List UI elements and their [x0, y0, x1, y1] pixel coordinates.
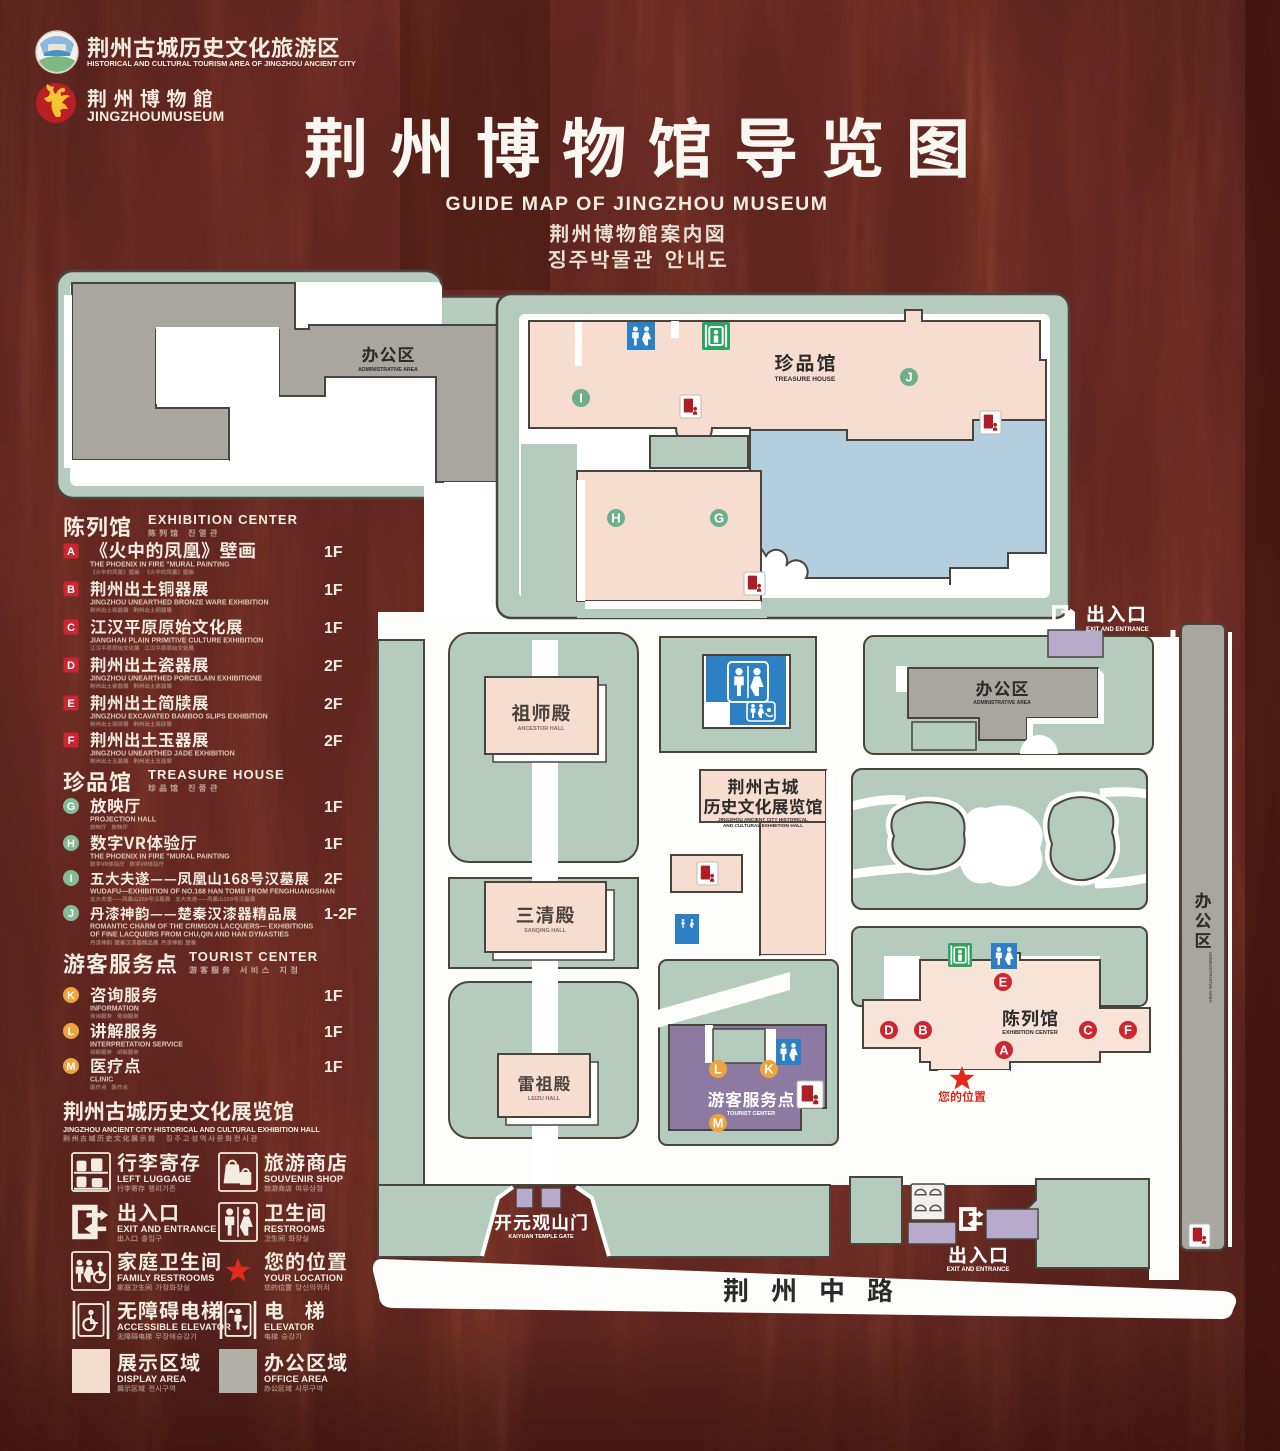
svg-text:G: G	[67, 801, 76, 813]
svg-text:KAIYUAN TEMPLE GATE: KAIYUAN TEMPLE GATE	[508, 1234, 574, 1240]
svg-text:E: E	[999, 975, 1008, 990]
svg-text:JIANGHAN PLAIN PRIMITIVE CULTU: JIANGHAN PLAIN PRIMITIVE CULTURE EXHIBIT…	[90, 638, 263, 645]
svg-text:J: J	[905, 370, 912, 385]
svg-text:LEIZU HALL: LEIZU HALL	[528, 1096, 561, 1102]
svg-text:K: K	[67, 990, 75, 1002]
svg-text:INFORMATION: INFORMATION	[90, 1006, 139, 1013]
svg-text:THE PHOENIX IN FIRE "MURAL PAI: THE PHOENIX IN FIRE "MURAL PAINTING	[90, 562, 230, 569]
svg-text:1F: 1F	[324, 544, 343, 561]
svg-text:OFFICE AREA: OFFICE AREA	[264, 1374, 328, 1384]
svg-text:JINGZHOU ANCIENT CITY HISTORIC: JINGZHOU ANCIENT CITY HISTORICAL AND CUL…	[63, 1125, 320, 1134]
svg-text:H: H	[611, 511, 620, 526]
svg-text:G: G	[714, 511, 724, 526]
svg-text:ELEVATOR: ELEVATOR	[264, 1322, 314, 1332]
svg-text:2F: 2F	[324, 696, 343, 713]
svg-text:PROJECTION HALL: PROJECTION HALL	[90, 817, 157, 824]
svg-text:EXHIBITION CENTER: EXHIBITION CENTER	[148, 512, 298, 527]
svg-text:YOUR LOCATION: YOUR LOCATION	[264, 1273, 343, 1283]
svg-text:1F: 1F	[324, 1024, 343, 1041]
svg-text:D: D	[67, 660, 75, 672]
svg-text:LEFT LUGGAGE: LEFT LUGGAGE	[117, 1174, 191, 1184]
svg-text:JINGZHOU UNEARTHED BRONZE WARE: JINGZHOU UNEARTHED BRONZE WARE EXHIBITIO…	[90, 600, 269, 607]
svg-text:CLINIC: CLINIC	[90, 1077, 113, 1084]
svg-text:EXIT AND ENTRANCE: EXIT AND ENTRANCE	[1086, 627, 1149, 633]
svg-text:JINGZHOUMUSEUM: JINGZHOUMUSEUM	[87, 108, 224, 124]
svg-text:DISPLAY AREA: DISPLAY AREA	[117, 1374, 187, 1384]
svg-text:I: I	[69, 873, 72, 885]
svg-text:B: B	[918, 1023, 927, 1038]
svg-text:2F: 2F	[324, 871, 343, 888]
svg-text:SOUVENIR SHOP: SOUVENIR SHOP	[264, 1174, 343, 1184]
svg-text:L: L	[714, 1062, 722, 1077]
svg-text:WUDAFU—EXHIBITION OF NO.168 HA: WUDAFU—EXHIBITION OF NO.168 HAN TOMB FRO…	[90, 889, 335, 896]
svg-text:I: I	[579, 391, 583, 406]
svg-text:2F: 2F	[324, 733, 343, 750]
svg-text:JINGZHOU ANCIENT CITY HISTORIC: JINGZHOU ANCIENT CITY HISTORICAL	[718, 817, 808, 823]
svg-text:1F: 1F	[324, 836, 343, 853]
svg-text:M: M	[66, 1061, 75, 1073]
svg-text:F: F	[68, 735, 75, 747]
svg-text:A: A	[999, 1043, 1009, 1058]
svg-text:RESTROOMS: RESTROOMS	[264, 1224, 325, 1234]
svg-text:L: L	[68, 1026, 75, 1038]
svg-text:INTERPRETATION SERVICE: INTERPRETATION SERVICE	[90, 1042, 183, 1049]
svg-text:ADMINISTRATIVE AREA: ADMINISTRATIVE AREA	[358, 367, 418, 373]
svg-text:B: B	[67, 584, 75, 596]
svg-text:H: H	[67, 838, 75, 850]
svg-text:1F: 1F	[324, 582, 343, 599]
svg-text:TREASURE HOUSE: TREASURE HOUSE	[148, 767, 285, 782]
svg-text:2F: 2F	[324, 658, 343, 675]
svg-text:EXIT AND ENTRANCE: EXIT AND ENTRANCE	[947, 1267, 1010, 1273]
svg-text:SANQING HALL: SANQING HALL	[524, 928, 567, 934]
svg-text:EXHIBITION CENTER: EXHIBITION CENTER	[1002, 1030, 1058, 1036]
svg-text:TREASURE HOUSE: TREASURE HOUSE	[775, 376, 836, 383]
svg-text:C: C	[67, 622, 75, 634]
svg-text:1F: 1F	[324, 988, 343, 1005]
svg-text:K: K	[764, 1062, 774, 1077]
svg-text:F: F	[1124, 1023, 1132, 1038]
svg-text:ADMINISTRATIVE AREA: ADMINISTRATIVE AREA	[1208, 952, 1213, 1003]
svg-text:TOURIST CENTER: TOURIST CENTER	[727, 1111, 775, 1117]
svg-text:ACCESSIBLE ELEVATOR: ACCESSIBLE ELEVATOR	[117, 1322, 231, 1332]
svg-text:ANCESTOR HALL: ANCESTOR HALL	[518, 726, 566, 732]
svg-text:J: J	[68, 908, 74, 920]
svg-text:A: A	[67, 546, 75, 558]
svg-text:JINGZHOU UNEARTHED JADE EXHIBI: JINGZHOU UNEARTHED JADE EXHIBITION	[90, 751, 235, 758]
svg-text:1F: 1F	[324, 1059, 343, 1076]
svg-text:TOURIST CENTER: TOURIST CENTER	[189, 949, 318, 964]
svg-text:ADMINISTRATIVE AREA: ADMINISTRATIVE AREA	[973, 700, 1031, 706]
svg-text:ROMANTIC CHARM OF THE CRIMSON: ROMANTIC CHARM OF THE CRIMSON LACQUERS— …	[90, 924, 314, 931]
svg-text:AND CULTURAL EXHIBITION HALL: AND CULTURAL EXHIBITION HALL	[723, 823, 803, 829]
svg-text:1F: 1F	[324, 799, 343, 816]
svg-text:HISTORICAL AND CULTURAL TOURIS: HISTORICAL AND CULTURAL TOURISM AREA OF …	[87, 59, 356, 68]
svg-text:JINGZHOU UNEARTHED PORCELAIN E: JINGZHOU UNEARTHED PORCELAIN EXHIBITIONE	[90, 676, 262, 683]
svg-text:THE PHOENIX IN FIRE "MURAL PAI: THE PHOENIX IN FIRE "MURAL PAINTING	[90, 854, 230, 861]
svg-text:1F: 1F	[324, 620, 343, 637]
svg-text:EXIT AND ENTRANCE: EXIT AND ENTRANCE	[117, 1224, 217, 1234]
svg-text:OF FINE LACQUERS FROM CHU,QIN: OF FINE LACQUERS FROM CHU,QIN AND HAN DY…	[90, 932, 289, 939]
svg-text:D: D	[884, 1023, 893, 1038]
svg-text:GUIDE MAP OF JINGZHOU MUSEUM: GUIDE MAP OF JINGZHOU MUSEUM	[446, 193, 829, 215]
svg-text:M: M	[713, 1116, 724, 1131]
svg-text:FAMILY RESTROOMS: FAMILY RESTROOMS	[117, 1273, 215, 1283]
svg-text:E: E	[67, 698, 74, 710]
svg-text:1-2F: 1-2F	[324, 906, 357, 923]
svg-text:C: C	[1083, 1023, 1093, 1038]
svg-text:JINGZHOU EXCAVATED BAMBOO SLIP: JINGZHOU EXCAVATED BAMBOO SLIPS EXHIBITI…	[90, 714, 268, 721]
